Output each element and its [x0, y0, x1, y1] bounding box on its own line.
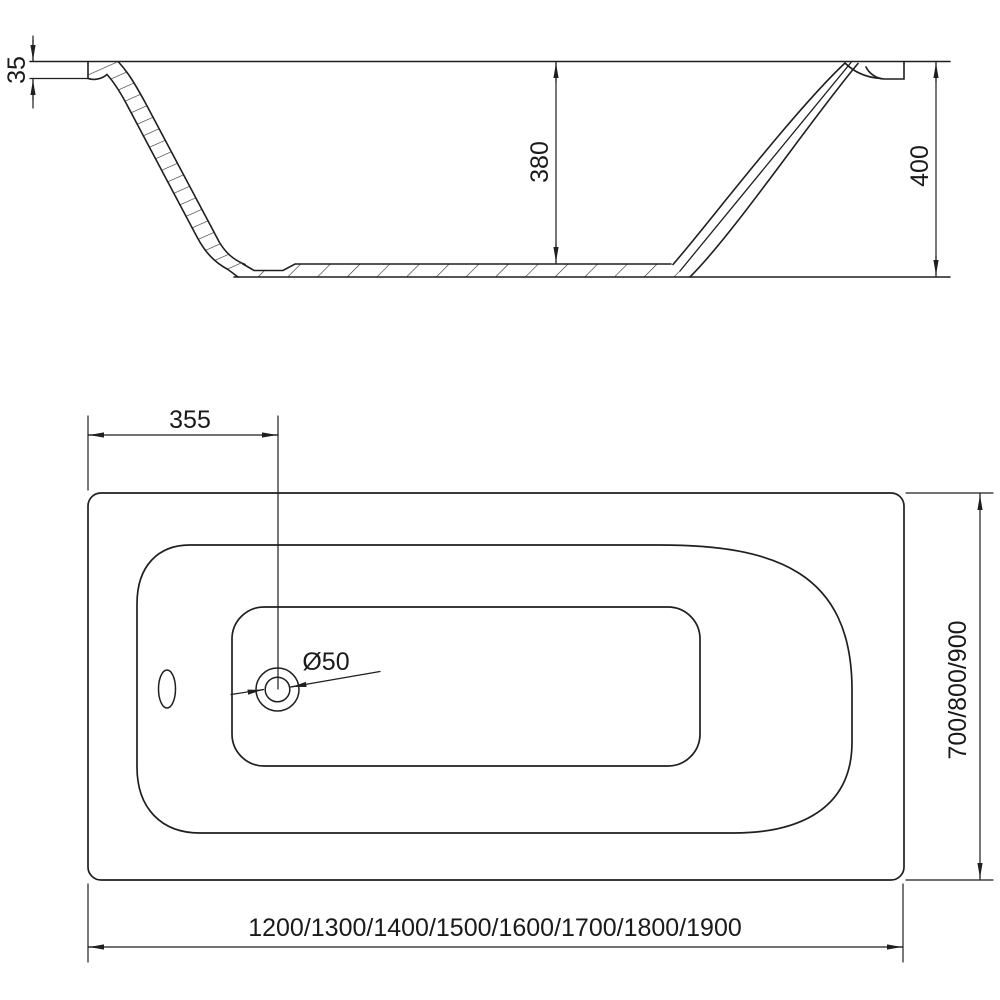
width-options-label: 700/800/900	[944, 620, 972, 759]
floor-hatch	[232, 264, 688, 277]
dimension-length-options: 1200/1300/1400/1500/1600/1700/1800/1900	[88, 884, 903, 962]
technical-drawing-page: 35 380 400	[0, 0, 1000, 1000]
right-wall-outer-line	[690, 64, 858, 278]
dimension-inner-depth: 380	[526, 62, 556, 264]
inner-depth-label: 380	[526, 141, 554, 183]
dimension-drain-diameter: Ø50	[231, 648, 380, 695]
drain-offset-label: 355	[169, 406, 211, 434]
dimension-drain-offset: 355	[88, 406, 278, 689]
drain-diameter-label: Ø50	[302, 648, 349, 676]
tub-floor-outline	[232, 607, 700, 766]
dimension-overall-height: 400	[906, 62, 936, 277]
plan-view: 355 Ø50 1200/1300/1400/1500/1600/1700/18…	[88, 406, 993, 962]
dimension-rim-height: 35	[3, 36, 33, 108]
overflow-hole	[159, 670, 176, 708]
overall-height-label: 400	[906, 145, 934, 187]
tub-rim-opening-outline	[137, 545, 852, 833]
bathtub-technical-drawing: 35 380 400	[0, 0, 1000, 1000]
section-view: 35 380 400	[3, 36, 950, 277]
right-rim-edge	[866, 62, 904, 80]
right-wall-inner-line	[673, 63, 845, 265]
rim-height-label: 35	[3, 56, 31, 84]
dimension-width-options: 700/800/900	[906, 493, 993, 880]
tub-outer-outline	[88, 493, 904, 880]
length-options-label: 1200/1300/1400/1500/1600/1700/1800/1900	[248, 914, 742, 942]
right-wall-middle-line	[680, 63, 851, 272]
